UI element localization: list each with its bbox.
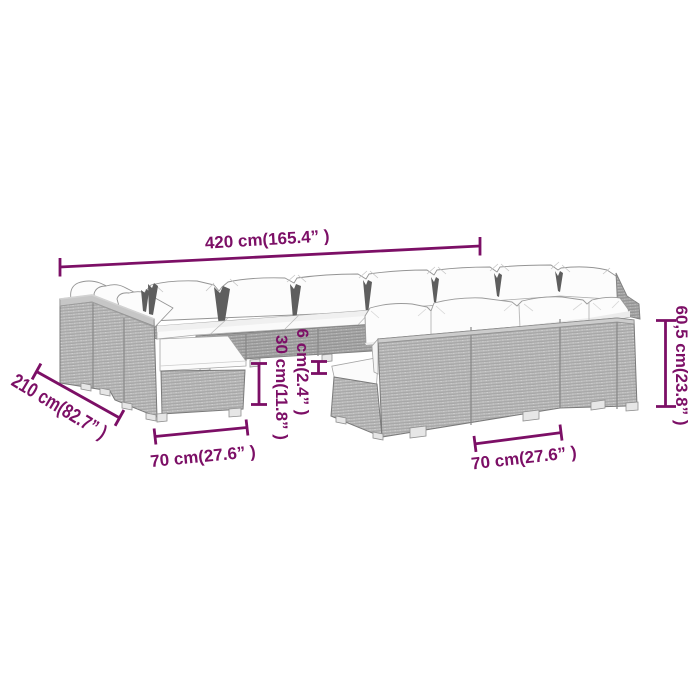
svg-text:6 cm(2.4” ): 6 cm(2.4” ) bbox=[293, 329, 312, 416]
svg-text:70 cm(27.6” ): 70 cm(27.6” ) bbox=[149, 442, 256, 471]
svg-text:420 cm(165.4” ): 420 cm(165.4” ) bbox=[204, 226, 330, 252]
svg-text:70 cm(27.6” ): 70 cm(27.6” ) bbox=[470, 443, 577, 474]
svg-text:30 cm(11.8” ): 30 cm(11.8” ) bbox=[272, 335, 291, 440]
svg-text:60,5 cm(23.8” ): 60,5 cm(23.8” ) bbox=[672, 305, 691, 425]
